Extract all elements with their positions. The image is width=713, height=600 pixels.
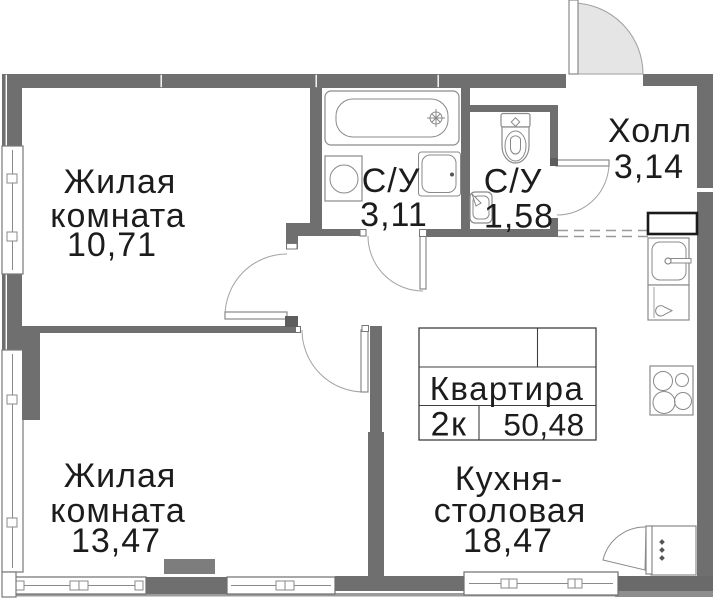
svg-text:3,11: 3,11	[360, 196, 428, 234]
svg-text:18,47: 18,47	[463, 522, 553, 560]
svg-text:Холл: Холл	[608, 112, 692, 150]
svg-text:С/У: С/У	[484, 163, 543, 201]
svg-text:3,14: 3,14	[614, 148, 684, 186]
svg-text:13,47: 13,47	[71, 522, 161, 560]
svg-text:С/У: С/У	[362, 162, 421, 200]
svg-text:Жилая: Жилая	[64, 457, 177, 495]
svg-text:Жилая: Жилая	[64, 163, 177, 201]
svg-text:2к: 2к	[431, 406, 468, 444]
svg-text:50,48: 50,48	[503, 407, 584, 443]
svg-text:10,71: 10,71	[67, 226, 157, 264]
svg-text:1,58: 1,58	[484, 198, 554, 236]
svg-text:Квартира: Квартира	[430, 370, 585, 407]
